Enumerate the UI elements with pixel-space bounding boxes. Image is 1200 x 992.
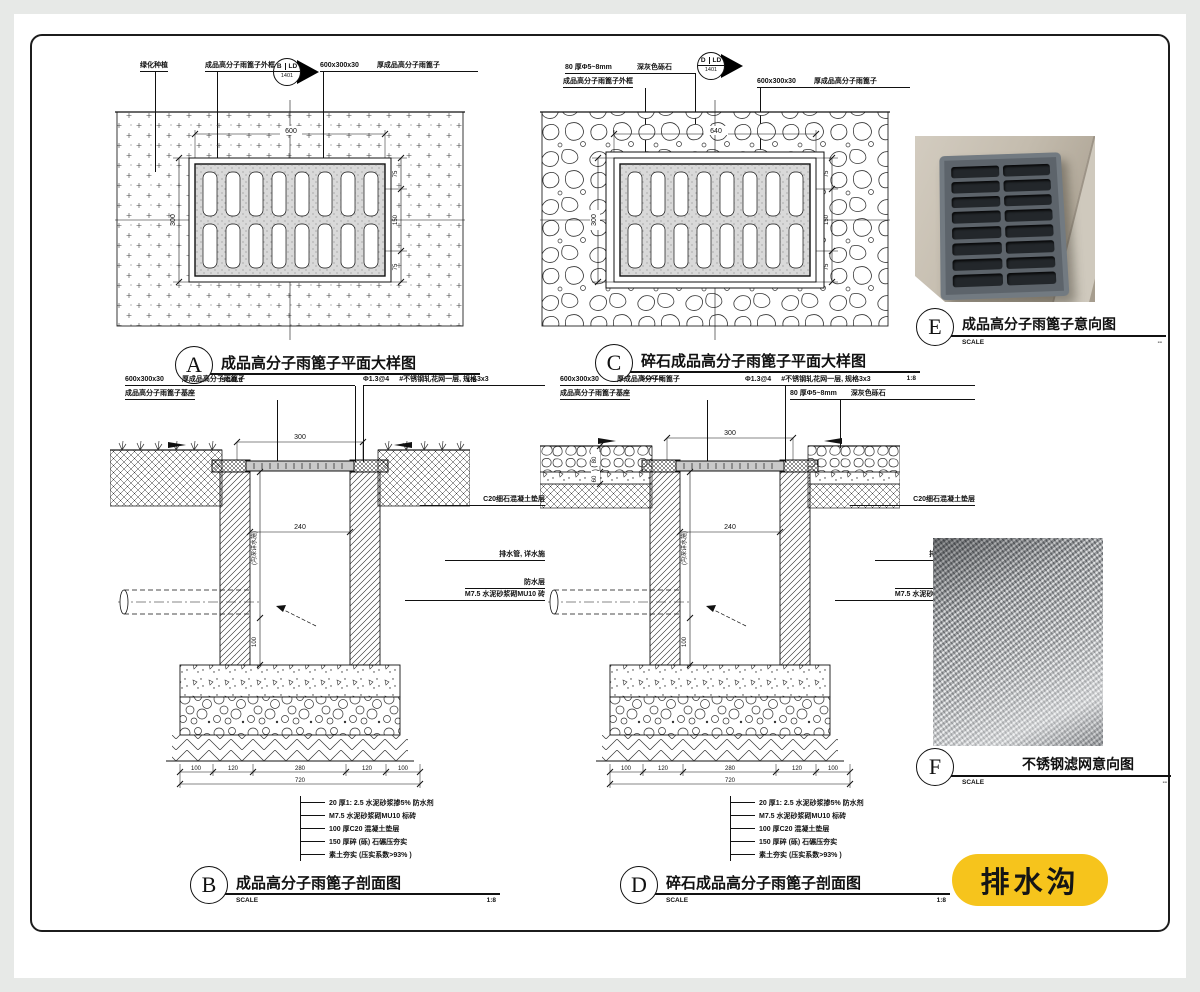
note-row: 20 厚1: 2.5 水泥砂浆掺5% 防水剂 — [731, 796, 966, 809]
svg-text:100: 100 — [621, 766, 632, 772]
flag-sheet: LD — [289, 63, 298, 70]
scale-label: SCALE — [962, 779, 984, 786]
dim-100: 100 — [252, 636, 258, 647]
title-d-text: 碎石成品高分子雨篦子剖面图 — [666, 872, 861, 893]
drainage-badge: 排水沟 — [952, 854, 1108, 906]
section-cut-flag-b: BLD 1401 — [263, 58, 323, 90]
dim-75: 75 — [824, 170, 830, 177]
svg-text:120: 120 — [658, 766, 669, 772]
brick-wall-right — [780, 472, 810, 665]
dim-75: 75 — [393, 170, 399, 177]
svg-text:120: 120 — [792, 766, 803, 772]
sec-d-grate: 厚成品高分子雨篦子 — [617, 376, 680, 384]
concrete-base — [180, 665, 400, 697]
ref-circle-e: E — [916, 308, 954, 346]
sec-b-size: 600x300x30 — [125, 376, 164, 384]
sec-b-notes: 20 厚1: 2.5 水泥砂浆掺5% 防水剂 M7.5 水泥砂浆砌MU10 标砖… — [300, 796, 536, 861]
plan-a-grate: 厚成品高分子雨篦子 — [377, 62, 440, 70]
leader-line — [565, 73, 695, 74]
flag-number: 1401 — [698, 66, 724, 73]
plan-c-gravel-label-2: 深灰色砾石 — [637, 64, 672, 72]
svg-text:100: 100 — [398, 766, 409, 772]
ref-circle-f: F — [916, 748, 954, 786]
note-row: 素土夯实 (压实系数>93% ) — [301, 848, 536, 861]
dim-240: 240 — [724, 524, 736, 531]
dim-300: 300 — [724, 430, 736, 437]
plan-c-size: 600x300x30 — [757, 78, 796, 86]
title-d: D 碎石成品高分子雨篦子剖面图 SCALE 1:8 — [620, 866, 950, 910]
drawing-sheet-page: 绿化种植 成品高分子雨篦子外框 600x300x30 厚成品高分子雨篦子 BLD… — [0, 0, 1200, 992]
compacted-soil — [602, 735, 838, 761]
scale-label: SCALE — [236, 897, 258, 904]
cobble-band-right — [808, 446, 900, 472]
plan-c-grate: 厚成品高分子雨篦子 — [814, 78, 877, 86]
plan-a-area-label: 绿化种植 — [140, 62, 168, 72]
dim-60: 60 — [592, 475, 598, 482]
dim-300: 300 — [170, 214, 177, 226]
note-row: 100 厚C20 混凝土垫层 — [731, 822, 966, 835]
slope-arrow-right — [394, 442, 412, 448]
sec-d-notes: 20 厚1: 2.5 水泥砂浆掺5% 防水剂 M7.5 水泥砂浆砌MU10 标砖… — [730, 796, 966, 861]
scale-value: -- — [1158, 339, 1162, 346]
section-b-drawing: 300 240 (沟深详水施) 100 100 120 280 120 100 … — [110, 420, 470, 795]
title-b-text: 成品高分子雨篦子剖面图 — [236, 872, 401, 893]
sec-b-pipe-label: 排水管, 详水施 — [445, 551, 545, 561]
note-row: 20 厚1: 2.5 水泥砂浆掺5% 防水剂 — [301, 796, 536, 809]
title-f-text: 不锈钢滤网意向图 — [1022, 754, 1134, 774]
section-cut-flag-d: DLD 1401 — [687, 52, 747, 84]
concrete-base — [610, 665, 830, 697]
scale-value: -- — [1163, 779, 1167, 786]
flag-sheet: LD — [713, 57, 722, 64]
dim-640: 640 — [710, 128, 722, 135]
grate-seat-right — [780, 460, 818, 472]
svg-text:100: 100 — [828, 766, 839, 772]
svg-text:280: 280 — [295, 766, 306, 772]
note-row: 100 厚C20 混凝土垫层 — [301, 822, 536, 835]
section-d-drawing: 80 60 300 240 (沟深详水施) 100 100 120 280 12… — [540, 420, 900, 795]
ref-circle-d: D — [620, 866, 658, 904]
plan-a-drawing: 600 300 75 150 75 — [115, 100, 465, 340]
svg-text:280: 280 — [725, 766, 736, 772]
dim-80: 80 — [592, 456, 598, 463]
dim-150: 150 — [824, 214, 830, 225]
grate-photo-grate — [940, 152, 1070, 300]
title-b: B 成品高分子雨篦子剖面图 SCALE 1:8 — [190, 866, 500, 910]
dim-depth-note: (沟深详水施) — [680, 531, 688, 565]
flag-number: 1401 — [274, 72, 300, 79]
scale-label: SCALE — [666, 897, 688, 904]
dim-150: 150 — [393, 214, 399, 225]
dim-75: 75 — [393, 263, 399, 270]
sec-d-gravel-size: 80 厚Φ5~8mm — [790, 390, 837, 398]
ref-circle-b: B — [190, 866, 228, 904]
brick-wall-left — [650, 472, 680, 665]
dim-600: 600 — [285, 128, 297, 135]
sec-b-mesh-desc: #不锈钢轧花网一层, 规格3x3 — [399, 376, 488, 384]
section-b-block: 600x300x30 厚成品高分子雨篦子 成品高分子雨篦子基座 Φ1.3@4 #… — [105, 368, 550, 920]
sec-b-grate-label: 600x300x30 厚成品高分子雨篦子 — [125, 376, 355, 386]
scale-label: SCALE — [962, 339, 984, 346]
grate-seat-left — [642, 460, 680, 472]
svg-text:120: 120 — [362, 766, 373, 772]
grate-seat-right — [350, 460, 388, 472]
grate-photo — [915, 136, 1095, 302]
section-d-block: 600x300x30 厚成品高分子雨篦子 成品高分子雨篦子基座 Φ1.3@4 #… — [535, 368, 980, 920]
plan-a-size: 600x300x30 — [320, 62, 359, 70]
sec-d-size: 600x300x30 — [560, 376, 599, 384]
note-row: 150 厚碎 (砾) 石碾压夯实 — [731, 835, 966, 848]
slope-arrow-right — [824, 438, 842, 444]
flag-letter: B — [277, 63, 286, 70]
sec-b-mesh-dia: Φ1.3@4 — [363, 376, 389, 384]
sec-d-base-label: 成品高分子雨篦子基座 — [560, 390, 630, 400]
dim-depth-note: (沟深详水施) — [250, 531, 258, 565]
sec-b-c20-label: C20细石混凝土垫层 — [420, 496, 545, 506]
plan-c-gravel-label-1: 80 厚Φ5~8mm — [565, 64, 612, 72]
svg-text:120: 120 — [228, 766, 239, 772]
scale-value: 1:8 — [937, 897, 946, 904]
plan-c-frame-label: 成品高分子雨篦子外框 — [563, 78, 633, 88]
sec-b-grate: 厚成品高分子雨篦子 — [182, 376, 245, 384]
sec-d-mesh-label: Φ1.3@4 #不锈钢轧花网一层, 规格3x3 — [745, 376, 975, 386]
sec-b-base-label: 成品高分子雨篦子基座 — [125, 390, 195, 400]
dim-300: 300 — [591, 214, 598, 226]
sec-b-mortar-label: M7.5 水泥砂浆砌MU10 砖 — [405, 591, 545, 601]
gravel-layer — [610, 697, 830, 735]
sec-d-c20-label: C20细石混凝土垫层 — [850, 496, 975, 506]
dim-720: 720 — [295, 778, 306, 784]
brick-wall-left — [220, 472, 250, 665]
sec-d-gravel-label: 80 厚Φ5~8mm 深灰色砾石 — [790, 390, 975, 400]
svg-text:100: 100 — [191, 766, 202, 772]
note-row: M7.5 水泥砂浆砌MU10 标砖 — [301, 809, 536, 822]
dim-720: 720 — [725, 778, 736, 784]
mesh-photo — [933, 538, 1103, 746]
plan-c-block: 80 厚Φ5~8mm 深灰色砾石 成品高分子雨篦子外框 600x300x30 厚… — [535, 52, 915, 398]
dim-240: 240 — [294, 524, 306, 531]
sec-d-gravel-color: 深灰色砾石 — [851, 390, 886, 398]
plan-a-grate-label: 600x300x30 厚成品高分子雨篦子 — [320, 62, 478, 72]
dim-75: 75 — [824, 263, 830, 270]
compacted-soil — [172, 735, 408, 761]
title-e-text: 成品高分子雨篦子意向图 — [962, 314, 1116, 334]
note-row: 150 厚碎 (砾) 石碾压夯实 — [301, 835, 536, 848]
note-row: 素土夯实 (压实系数>93% ) — [731, 848, 966, 861]
scale-value: 1:8 — [487, 897, 496, 904]
title-f: F 不锈钢滤网意向图 SCALE -- — [916, 748, 1171, 792]
note-row: M7.5 水泥砂浆砌MU10 标砖 — [731, 809, 966, 822]
flag-letter: D — [701, 57, 710, 64]
brick-wall-right — [350, 472, 380, 665]
sec-d-mesh-dia: Φ1.3@4 — [745, 376, 771, 384]
plan-a-block: 绿化种植 成品高分子雨篦子外框 600x300x30 厚成品高分子雨篦子 BLD… — [105, 58, 485, 398]
sec-b-mesh-label: Φ1.3@4 #不锈钢轧花网一层, 规格3x3 — [363, 376, 545, 386]
sec-d-mesh-desc: #不锈钢轧花网一层, 规格3x3 — [781, 376, 870, 384]
plan-c-grate-label: 600x300x30 厚成品高分子雨篦子 — [757, 78, 910, 88]
grate-seat-left — [212, 460, 250, 472]
dim-100: 100 — [682, 636, 688, 647]
dim-300: 300 — [294, 434, 306, 441]
title-e: E 成品高分子雨篦子意向图 SCALE -- — [916, 308, 1166, 352]
plan-c-drawing: 640 300 75 150 75 — [540, 100, 890, 340]
sec-b-waterproof-label: 防水层 — [465, 579, 545, 589]
slope-arrow-left — [598, 438, 616, 444]
gravel-layer — [180, 697, 400, 735]
